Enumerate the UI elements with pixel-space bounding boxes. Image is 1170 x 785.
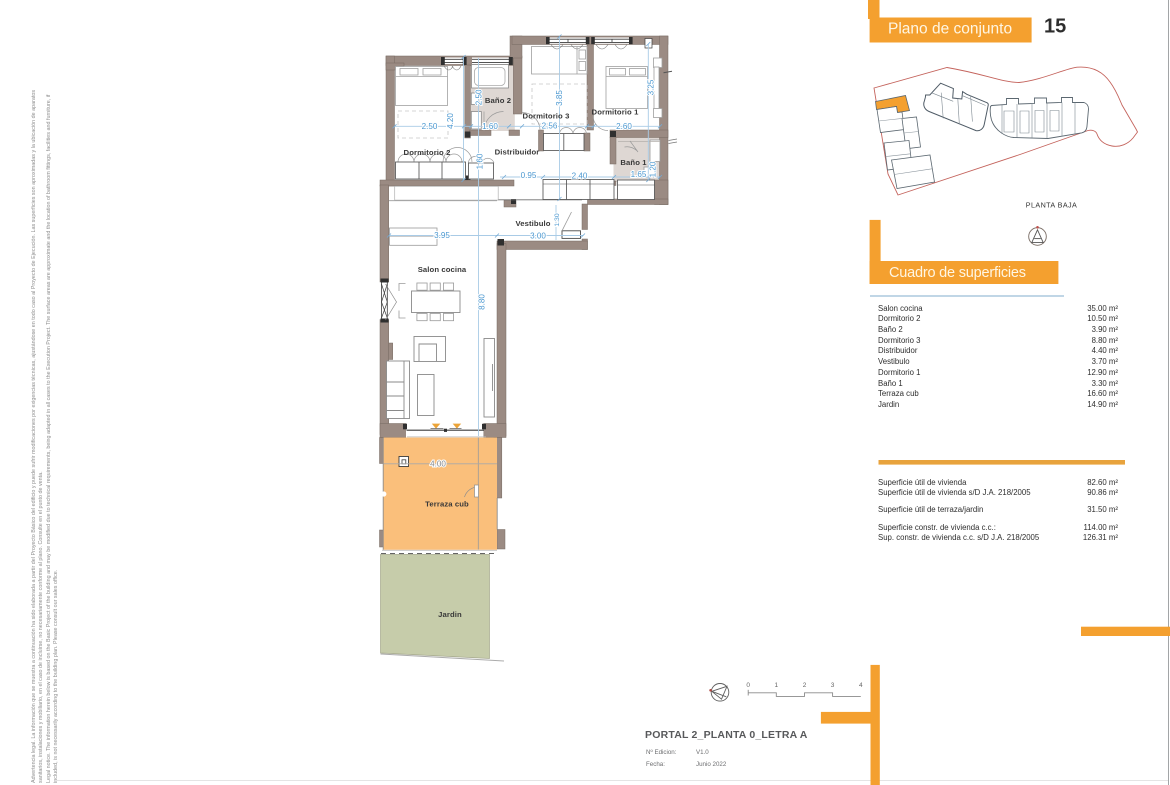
svg-text:3.00: 3.00 — [530, 232, 546, 241]
svg-text:8.80: 8.80 — [477, 294, 486, 310]
svg-text:0: 0 — [746, 682, 750, 689]
svg-text:3: 3 — [831, 682, 835, 689]
svg-text:2: 2 — [803, 682, 807, 689]
svg-text:Salon cocina: Salon cocina — [418, 265, 467, 274]
svg-text:2.50: 2.50 — [422, 122, 438, 131]
svg-text:4: 4 — [859, 682, 863, 689]
svg-text:2.60: 2.60 — [616, 122, 632, 131]
svg-text:Dormitorio 1: Dormitorio 1 — [592, 108, 640, 117]
svg-text:Terraza cub: Terraza cub — [425, 500, 469, 509]
svg-text:2.50: 2.50 — [475, 89, 484, 105]
svg-text:1.20: 1.20 — [648, 161, 657, 177]
svg-text:Jardin: Jardin — [438, 610, 462, 619]
svg-text:3.25: 3.25 — [646, 79, 655, 95]
svg-text:1.65: 1.65 — [631, 170, 647, 179]
svg-text:PLANTA BAJA: PLANTA BAJA — [1026, 201, 1077, 210]
svg-text:Plano de conjunto: Plano de conjunto — [888, 21, 1012, 38]
svg-text:3.85: 3.85 — [555, 90, 564, 106]
svg-text:15: 15 — [1044, 16, 1066, 38]
svg-text:4.00: 4.00 — [430, 459, 446, 468]
svg-text:2.40: 2.40 — [572, 172, 588, 181]
svg-text:Dormitorio 3: Dormitorio 3 — [523, 112, 570, 121]
svg-text:1: 1 — [774, 682, 778, 689]
svg-text:2.56: 2.56 — [542, 122, 558, 131]
svg-text:4.20: 4.20 — [446, 113, 455, 129]
svg-text:1.60: 1.60 — [475, 153, 484, 169]
svg-text:0.95: 0.95 — [521, 171, 537, 180]
svg-text:1.30: 1.30 — [554, 213, 561, 226]
svg-text:Cuadro de superficies: Cuadro de superficies — [889, 265, 1026, 281]
svg-text:Dormitorio 2: Dormitorio 2 — [404, 148, 451, 157]
svg-text:3.95: 3.95 — [434, 231, 450, 240]
svg-text:Baño 1: Baño 1 — [620, 158, 647, 167]
svg-text:Vestibulo: Vestibulo — [515, 219, 550, 228]
svg-text:Distribuidor: Distribuidor — [495, 148, 540, 157]
svg-text:1.60: 1.60 — [482, 122, 498, 131]
svg-text:Baño 2: Baño 2 — [485, 96, 511, 105]
